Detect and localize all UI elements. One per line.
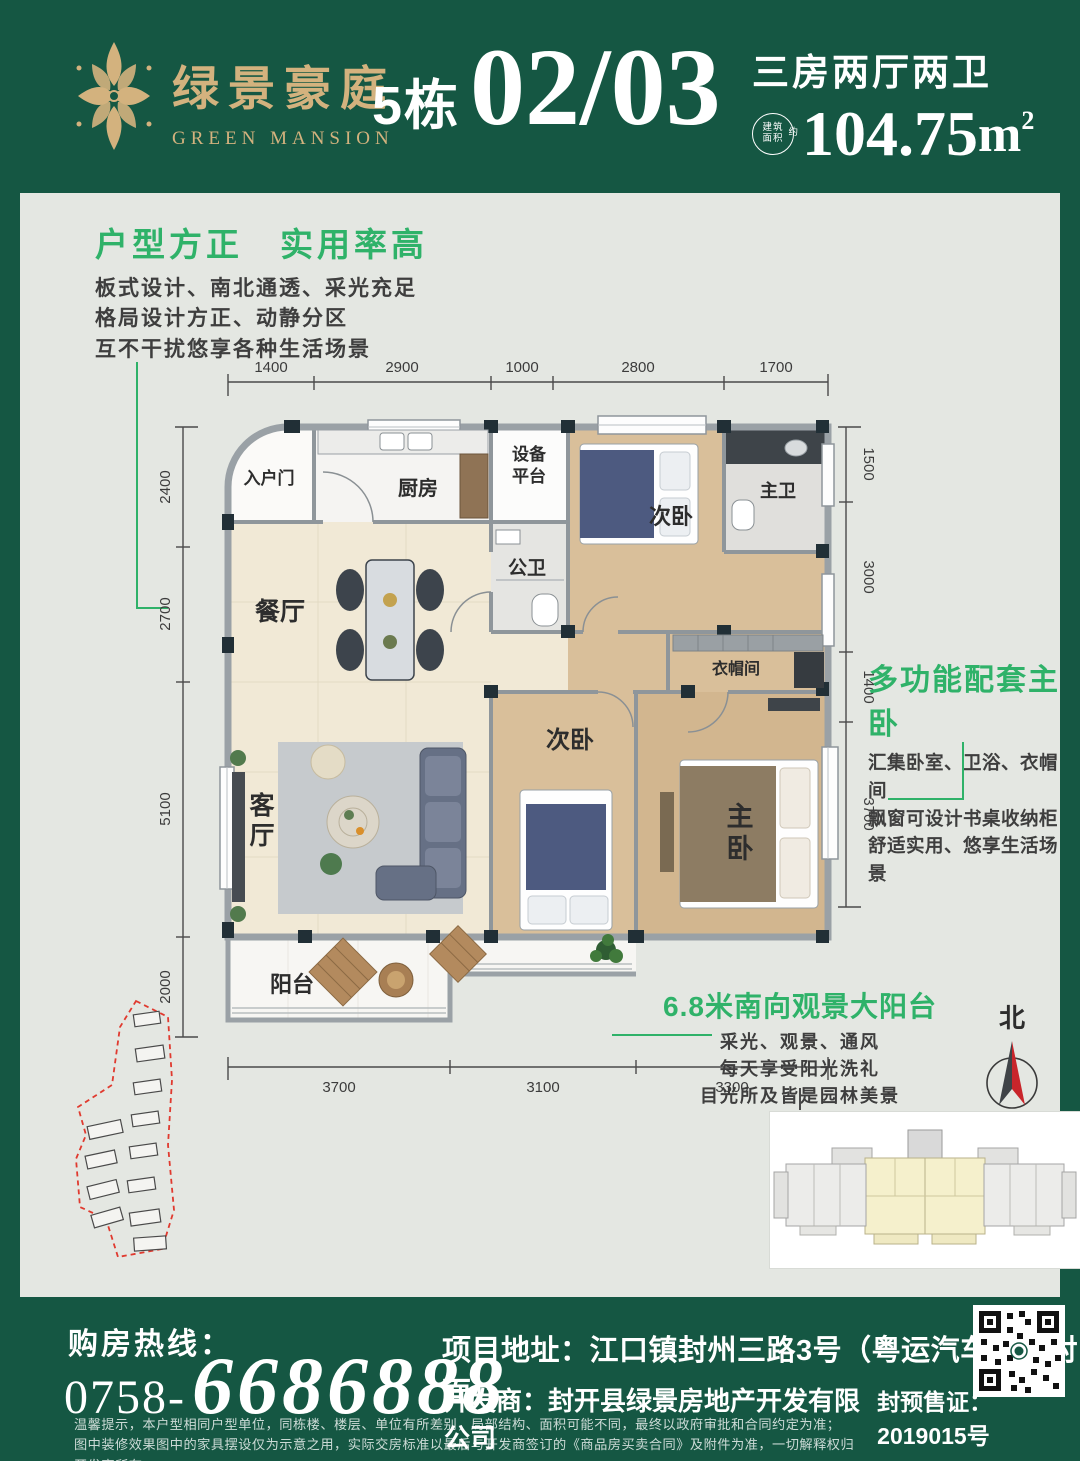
north-label: 北	[976, 998, 1048, 1035]
header-band: 绿景豪庭 GREEN MANSION 5栋 02/03 三房两厅两卫 建筑 面积…	[0, 0, 1080, 193]
room-label-dining: 餐厅	[255, 598, 305, 626]
disclaimer: 温馨提示，本户型相同户型单位，同栋楼、楼层、单位有所差别，局部结构、面积可能不同…	[74, 1415, 864, 1461]
svg-text:3000: 3000	[860, 560, 877, 593]
compass: 北	[976, 998, 1048, 1122]
disclaimer-line2: 图中装修效果图中的家具摆设仅为示意之用，实际交房标准以最后与开发商签订的《商品房…	[74, 1435, 864, 1461]
selling-point-layout: 户型方正 实用率高 板式设计、南北通透、采光充足 格局设计方正、动静分区 互不干…	[95, 218, 495, 365]
svg-text:1500: 1500	[860, 447, 877, 480]
brand-name-cn: 绿景豪庭	[172, 50, 396, 119]
layout-spec: 三房两厅两卫	[752, 42, 1034, 96]
sp3-leader-tick	[799, 1088, 801, 1110]
room-label-entry: 入户门	[244, 468, 295, 488]
brand-flower-icon	[66, 34, 162, 158]
svg-text:3700: 3700	[322, 1079, 355, 1096]
svg-text:1400: 1400	[254, 359, 287, 376]
sp2-pointer-line	[888, 742, 964, 800]
room-label-bed3: 次卧	[546, 727, 594, 754]
unit-number: 02/03	[470, 30, 721, 146]
svg-text:1700: 1700	[759, 359, 792, 376]
room-label-bed2: 次卧	[649, 504, 693, 529]
svg-text:1000: 1000	[505, 359, 538, 376]
room-label-balcony: 阳台	[270, 972, 314, 997]
svg-text:3100: 3100	[526, 1079, 559, 1096]
footer-band: 购房热线： 0758- 6686888 项目地址：江口镇封州三路3号（粤运汽车站…	[0, 1297, 1080, 1461]
svg-text:5100: 5100	[157, 792, 174, 825]
sp2-line2: 飘窗可设计书桌收纳柜	[868, 805, 1068, 833]
svg-text:2900: 2900	[385, 359, 418, 376]
room-label-living-1: 客	[249, 791, 274, 820]
svg-text:2700: 2700	[157, 597, 174, 630]
site-plan-thumbnail	[56, 985, 206, 1275]
left-frame-border	[0, 193, 20, 1297]
svg-text:2800: 2800	[621, 359, 654, 376]
area-value: 104.75	[802, 102, 978, 166]
room-label-guest-bath: 公卫	[508, 557, 546, 579]
room-label-equip-1: 设备	[512, 444, 547, 464]
room-label-kitchen: 厨房	[398, 476, 438, 500]
area-unit: m2	[978, 105, 1034, 164]
area-badge-line2: 面积	[762, 134, 783, 145]
site-buildings	[85, 1011, 166, 1251]
room-label-master-bath: 主卫	[760, 480, 796, 501]
qr-code	[973, 1305, 1065, 1397]
area-badge-approx: 约	[788, 128, 799, 139]
room-label-living-2: 厅	[249, 822, 274, 850]
sp2-title: 多功能配套主卧	[868, 655, 1068, 743]
room-label-equip-2: 平台	[512, 466, 546, 486]
room-label-closet: 衣帽间	[712, 659, 760, 678]
sp1-line1: 板式设计、南北通透、采光充足	[95, 274, 495, 304]
room-label-master-2: 卧	[727, 834, 754, 864]
brand-name-en: GREEN MANSION	[172, 128, 396, 150]
sp3-title: 6.8米南向观景大阳台	[655, 985, 945, 1025]
disclaimer-line1: 温馨提示，本户型相同户型单位，同栋楼、楼层、单位有所差别，局部结构、面积可能不同…	[74, 1415, 864, 1435]
svg-text:2400: 2400	[157, 470, 174, 503]
north-arrow-icon	[976, 1035, 1048, 1117]
sp1-title: 户型方正 实用率高	[95, 218, 495, 266]
building-number: 5栋	[372, 61, 460, 140]
sp2-line3: 舒适实用、悠享生活场景	[868, 832, 1068, 888]
key-plan-thumbnail	[770, 1112, 1080, 1268]
poster: 绿景豪庭 GREEN MANSION 5栋 02/03 三房两厅两卫 建筑 面积…	[0, 0, 1080, 1461]
sp1-line2: 格局设计方正、动静分区	[95, 304, 495, 334]
area-badge: 建筑 面积 约	[752, 113, 794, 155]
sp3-line2: 每天享受阳光洗礼	[655, 1056, 945, 1083]
room-label-master-1: 主	[727, 802, 754, 832]
sp3-pointer-line	[612, 1034, 712, 1036]
